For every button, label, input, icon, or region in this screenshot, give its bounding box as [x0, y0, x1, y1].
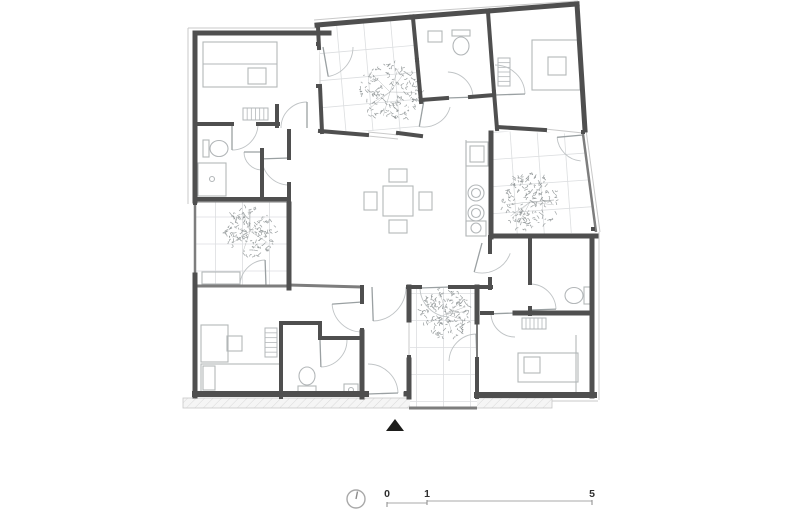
- door: [332, 302, 362, 332]
- door: [368, 364, 398, 394]
- scale-label-1: 1: [424, 488, 430, 500]
- door: [419, 100, 450, 127]
- door: [491, 313, 515, 337]
- plan-layers: [0, 0, 790, 512]
- radiator: [498, 58, 510, 86]
- entrance-marker-triangle: [386, 419, 404, 431]
- door: [447, 72, 473, 98]
- door: [320, 340, 347, 367]
- door: [530, 284, 556, 310]
- door: [232, 124, 258, 150]
- floor-plan-page: 0 1 5: [0, 0, 790, 512]
- door: [281, 102, 307, 128]
- toilet: [565, 287, 590, 304]
- scale-label-5: 5: [589, 488, 595, 500]
- radiator: [265, 328, 277, 357]
- door: [474, 243, 510, 273]
- floor-plan-drawing: 0 1 5: [0, 0, 790, 512]
- door: [244, 152, 262, 170]
- door: [262, 158, 289, 185]
- door: [372, 287, 406, 321]
- plinth: [183, 398, 552, 408]
- scale-bar: 0 1 5: [347, 488, 595, 508]
- radiator: [243, 108, 268, 120]
- toilet: [203, 140, 228, 157]
- toilet: [452, 30, 470, 55]
- scale-label-0: 0: [384, 488, 390, 500]
- toilet: [298, 367, 316, 392]
- radiator: [522, 318, 546, 329]
